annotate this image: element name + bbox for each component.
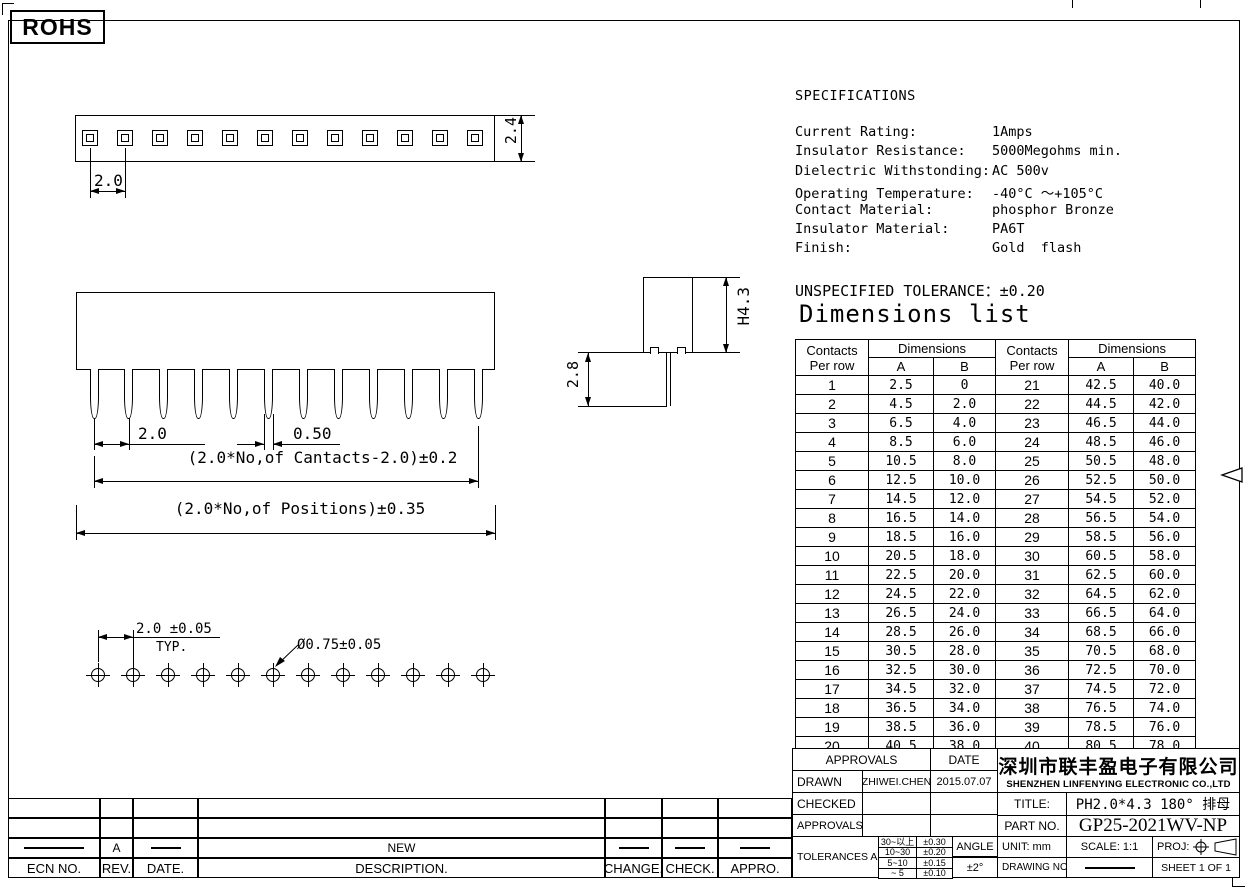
top-view-pin xyxy=(222,130,238,146)
dimension-cell: 44.5 xyxy=(1069,395,1134,414)
dim-ext-line xyxy=(495,115,535,116)
spec-row: Insulator Material:PA6T xyxy=(795,221,1245,240)
contacts-cell: 35 xyxy=(996,642,1069,661)
contacts-cell: 9 xyxy=(796,528,869,547)
contacts-cell: 33 xyxy=(996,604,1069,623)
leader-line xyxy=(268,640,308,672)
top-view-pin-inner xyxy=(436,134,444,142)
revision-header-cell: CHECK. xyxy=(662,858,718,878)
col-header-a: A xyxy=(1069,358,1134,376)
dims-row: 1122.520.03162.560.0 xyxy=(796,566,1196,585)
side-view-height-label: H4.3 xyxy=(734,287,753,326)
footprint-hole-crosshair xyxy=(343,663,344,687)
spec-label: Operating Temperature: xyxy=(795,186,992,202)
contacts-cell: 5 xyxy=(796,452,869,471)
angle-label-cell: ANGLE xyxy=(952,836,998,857)
dimension-cell: 76.0 xyxy=(1134,718,1196,737)
dimension-cell: 68.0 xyxy=(1134,642,1196,661)
front-view-pin xyxy=(334,369,343,419)
revision-empty-cell xyxy=(133,818,198,838)
revision-header-cell: REV. xyxy=(100,858,133,878)
col-header-contacts: Contacts Per row xyxy=(996,340,1069,376)
dim-ext-line xyxy=(264,414,265,450)
contacts-cell: 14 xyxy=(796,623,869,642)
dims-row: 714.512.02754.552.0 xyxy=(796,490,1196,509)
spec-label: Insulator Material: xyxy=(795,221,992,237)
contacts-cell: 39 xyxy=(996,718,1069,737)
dim-ext-line xyxy=(578,406,667,407)
front-view-body xyxy=(76,292,495,370)
drawn-label-cell: DRAWN xyxy=(792,770,863,793)
top-view-pin xyxy=(187,130,203,146)
top-view-pin-inner xyxy=(296,134,304,142)
corner-mark xyxy=(1232,886,1245,887)
revision-empty-cell xyxy=(133,798,198,818)
company-name-cn: 深圳市联丰盈电子有限公司 xyxy=(998,752,1238,779)
dimension-cell: 12.5 xyxy=(869,471,934,490)
drawing-no-label-cell: DRAWING NO. xyxy=(997,857,1067,878)
dimension-cell: 30.5 xyxy=(869,642,934,661)
dims-row: 36.54.02346.544.0 xyxy=(796,414,1196,433)
spec-row: Insulator Resistance:5000Megohms min. xyxy=(795,143,1245,162)
dimension-cell: 72.5 xyxy=(1069,661,1134,680)
drawing-no-value-cell xyxy=(1066,857,1153,878)
dimension-cell: 62.0 xyxy=(1134,585,1196,604)
dimension-cell: 68.5 xyxy=(1069,623,1134,642)
spec-row: Dielectric Withstonding:AC 500v xyxy=(795,163,1245,182)
dims-row: 1020.518.03060.558.0 xyxy=(796,547,1196,566)
dimension-cell: 0 xyxy=(934,376,996,395)
contacts-cell: 2 xyxy=(796,395,869,414)
contacts-cell: 4 xyxy=(796,433,869,452)
dim-ext-line xyxy=(495,161,535,162)
dim-ext-line xyxy=(129,418,130,450)
dimension-cell: 8.0 xyxy=(934,452,996,471)
contacts-cell: 12 xyxy=(796,585,869,604)
spec-value: 1Amps xyxy=(992,124,1033,140)
front-view-pin xyxy=(264,369,273,419)
dimension-cell: 2.5 xyxy=(869,376,934,395)
col-header-b: B xyxy=(934,358,996,376)
drawn-by-cell: ZHIWEI.CHEN xyxy=(862,770,931,793)
dimension-cell: 40.0 xyxy=(1134,376,1196,395)
dimension-cell: 18.0 xyxy=(934,547,996,566)
dimension-cell: 72.0 xyxy=(1134,680,1196,699)
checked-date-cell xyxy=(930,792,998,815)
positions-span-formula: (2.0*No,of Positions)±0.35 xyxy=(130,499,470,518)
spec-row: Contact Material:phosphor Bronze xyxy=(795,202,1245,221)
dimension-cell: 30.0 xyxy=(934,661,996,680)
dim-arrow xyxy=(94,441,103,447)
dim-arrow xyxy=(518,153,524,162)
spec-row: Operating Temperature:-40°C ～+105°C xyxy=(795,182,1245,201)
revision-header-cell: ECN NO. xyxy=(8,858,100,878)
dimension-cell: 8.5 xyxy=(869,433,934,452)
dims-row: 1938.536.03978.576.0 xyxy=(796,718,1196,737)
dim-arrow xyxy=(273,441,282,447)
front-view-pin xyxy=(404,369,413,419)
contacts-cell: 27 xyxy=(996,490,1069,509)
footprint-hole-crosshair xyxy=(413,663,414,687)
specifications-heading: SPECIFICATIONS xyxy=(795,88,916,104)
revision-empty-cell xyxy=(100,798,133,818)
top-view-pitch-label: 2.0 xyxy=(94,171,123,190)
engineering-drawing-page: ROHS 2.0 2.4 2.0 0.50 (2.0*No,of Cantact… xyxy=(0,0,1247,889)
dimension-cell: 2.0 xyxy=(934,395,996,414)
dimension-cell: 66.5 xyxy=(1069,604,1134,623)
revision-empty-cell xyxy=(100,818,133,838)
footprint-typ-label: TYP. xyxy=(156,640,187,655)
dims-row: 1836.534.03876.574.0 xyxy=(796,699,1196,718)
contacts-cell: 24 xyxy=(996,433,1069,452)
front-view-pin xyxy=(90,369,99,419)
dimension-cell: 46.5 xyxy=(1069,414,1134,433)
dimension-cell: 32.5 xyxy=(869,661,934,680)
front-view-pin xyxy=(369,369,378,419)
footprint-hole-crosshair xyxy=(378,663,379,687)
revision-empty-cell xyxy=(198,818,605,838)
dim-ext-line xyxy=(125,148,126,198)
spec-label: Current Rating: xyxy=(795,124,992,140)
contacts-cell: 22 xyxy=(996,395,1069,414)
dimension-cell: 4.0 xyxy=(934,414,996,433)
side-view-body xyxy=(643,277,693,353)
sheet-cell: SHEET 1 OF 1 xyxy=(1152,857,1240,878)
dimension-cell: 74.0 xyxy=(1134,699,1196,718)
side-view-pin-length-label: 2.8 xyxy=(564,361,582,388)
footprint-hole-crosshair xyxy=(483,663,484,687)
dimension-cell: 50.0 xyxy=(1134,471,1196,490)
dim-arrow xyxy=(723,277,729,286)
dimension-cell: 16.0 xyxy=(934,528,996,547)
dim-arrow xyxy=(98,634,107,640)
contacts-cell: 26 xyxy=(996,471,1069,490)
dimension-cell: 58.5 xyxy=(1069,528,1134,547)
contacts-cell: 36 xyxy=(996,661,1069,680)
revision-header-cell: CHANGE. xyxy=(605,858,662,878)
proj-label: PROJ: xyxy=(1157,841,1189,853)
dim-arrow xyxy=(486,530,495,536)
specifications-block: SPECIFICATIONS Current Rating:1AmpsInsul… xyxy=(795,88,916,104)
dim-arrow xyxy=(76,530,85,536)
revision-empty-dash-cell xyxy=(718,838,792,858)
contacts-cell: 38 xyxy=(996,699,1069,718)
spec-value: PA6T xyxy=(992,221,1025,237)
contacts-cell: 34 xyxy=(996,623,1069,642)
revision-header-cell: DATE. xyxy=(133,858,198,878)
spec-label: Finish: xyxy=(795,240,992,256)
title-value-cell: PH2.0*4.3 180° 排母 xyxy=(1066,792,1240,816)
revision-dash xyxy=(675,847,705,849)
dims-row: 24.52.02244.542.0 xyxy=(796,395,1196,414)
dimension-cell: 76.5 xyxy=(1069,699,1134,718)
dimension-cell: 70.5 xyxy=(1069,642,1134,661)
dimension-cell: 28.0 xyxy=(934,642,996,661)
dim-arrow xyxy=(255,441,264,447)
dimension-cell: 64.0 xyxy=(1134,604,1196,623)
front-view-pin xyxy=(194,369,203,419)
contacts-cell: 31 xyxy=(996,566,1069,585)
dimension-cell: 64.5 xyxy=(1069,585,1134,604)
dim-line xyxy=(273,444,340,445)
revision-header-cell: APPRO. xyxy=(718,858,792,878)
top-view-pin-inner xyxy=(366,134,374,142)
dimension-cell: 58.0 xyxy=(1134,547,1196,566)
col-header-dimensions: Dimensions xyxy=(1069,340,1196,358)
dimension-cell: 54.0 xyxy=(1134,509,1196,528)
dimension-cell: 52.0 xyxy=(1134,490,1196,509)
side-view-pin xyxy=(670,353,671,406)
dim-arrow xyxy=(723,344,729,353)
col-header-dimensions: Dimensions xyxy=(869,340,996,358)
dims-row: 510.58.02550.548.0 xyxy=(796,452,1196,471)
approvals-by-cell xyxy=(862,814,931,837)
drawn-date-cell: 2015.07.07 xyxy=(930,770,998,793)
front-view-pin xyxy=(439,369,448,419)
dimension-cell: 24.0 xyxy=(934,604,996,623)
contacts-cell: 17 xyxy=(796,680,869,699)
revision-dash xyxy=(24,847,84,849)
dim-line xyxy=(94,481,478,482)
spec-value: phosphor Bronze xyxy=(992,202,1114,218)
dimension-cell: 20.0 xyxy=(934,566,996,585)
contacts-cell: 13 xyxy=(796,604,869,623)
revision-dash xyxy=(740,847,770,849)
spec-value: -40°C ～+105°C xyxy=(992,186,1103,202)
side-view-pin xyxy=(666,353,667,406)
contacts-cell: 8 xyxy=(796,509,869,528)
front-view-pin xyxy=(159,369,168,419)
top-view-pin-inner xyxy=(191,134,199,142)
dims-row: 1530.528.03570.568.0 xyxy=(796,642,1196,661)
contacts-cell: 10 xyxy=(796,547,869,566)
dimension-cell: 20.5 xyxy=(869,547,934,566)
projection-cell: PROJ: xyxy=(1152,836,1240,858)
top-view-height-label: 2.4 xyxy=(502,117,520,144)
top-view-pin-inner xyxy=(86,134,94,142)
dimension-cell: 36.5 xyxy=(869,699,934,718)
dimension-cell: 26.0 xyxy=(934,623,996,642)
dim-arrow xyxy=(585,353,591,362)
dim-arrow xyxy=(94,478,103,484)
footprint-hole-crosshair xyxy=(133,663,134,687)
top-view-pin xyxy=(467,130,483,146)
dimension-cell: 24.5 xyxy=(869,585,934,604)
spec-value: 5000Megohms min. xyxy=(992,143,1122,159)
dimension-cell: 18.5 xyxy=(869,528,934,547)
dimension-cell: 36.0 xyxy=(934,718,996,737)
approvals-date-cell xyxy=(930,814,998,837)
top-view-pin-inner xyxy=(226,134,234,142)
dimension-cell: 26.5 xyxy=(869,604,934,623)
contacts-cell: 16 xyxy=(796,661,869,680)
dim-line xyxy=(94,444,205,445)
date-header-cell: DATE xyxy=(930,748,998,771)
contacts-cell: 18 xyxy=(796,699,869,718)
revision-empty-dash-cell xyxy=(133,838,198,858)
front-view-pin-width-label: 0.50 xyxy=(293,424,332,443)
dimension-cell: 42.5 xyxy=(1069,376,1134,395)
spec-label: Dielectric Withstonding: xyxy=(795,163,992,179)
top-view-pin xyxy=(117,130,133,146)
dimension-cell: 46.0 xyxy=(1134,433,1196,452)
dimension-cell: 12.0 xyxy=(934,490,996,509)
dimension-cell: 44.0 xyxy=(1134,414,1196,433)
top-view-pin xyxy=(362,130,378,146)
part-no-label-cell: PART NO. xyxy=(997,815,1067,837)
dimension-cell: 60.0 xyxy=(1134,566,1196,585)
spec-row: Current Rating:1Amps xyxy=(795,124,1245,143)
approvals-label-cell: APPROVALS xyxy=(792,814,863,837)
dimension-cell: 10.0 xyxy=(934,471,996,490)
dim-arrow xyxy=(469,478,478,484)
dim-line xyxy=(98,637,220,638)
dim-line xyxy=(76,533,495,534)
contacts-cell: 15 xyxy=(796,642,869,661)
dim-ext-line xyxy=(693,352,740,353)
revision-empty-cell xyxy=(8,798,100,818)
dimension-cell: 34.0 xyxy=(934,699,996,718)
dim-arrow xyxy=(585,397,591,406)
dimension-cell: 32.0 xyxy=(934,680,996,699)
contacts-cell: 7 xyxy=(796,490,869,509)
revision-empty-cell xyxy=(662,818,718,838)
top-view-pin-inner xyxy=(401,134,409,142)
dimension-cell: 78.5 xyxy=(1069,718,1134,737)
dims-row: 48.56.02448.546.0 xyxy=(796,433,1196,452)
contacts-cell: 37 xyxy=(996,680,1069,699)
revision-empty-cell xyxy=(605,818,662,838)
revision-empty-cell xyxy=(198,798,605,818)
revision-header-cell: DESCRIPTION. xyxy=(198,858,605,878)
top-view-pin xyxy=(257,130,273,146)
dims-row: 1224.522.03264.562.0 xyxy=(796,585,1196,604)
dims-row: 1734.532.03774.572.0 xyxy=(796,680,1196,699)
top-view-pin-inner xyxy=(261,134,269,142)
front-view-pin xyxy=(299,369,308,419)
dims-row: 612.510.02652.550.0 xyxy=(796,471,1196,490)
corner-mark xyxy=(1232,878,1233,886)
dim-line xyxy=(726,277,727,353)
top-view-pin-inner xyxy=(471,134,479,142)
footprint-hole-crosshair xyxy=(168,663,169,687)
company-name-en: SHENZHEN LINFENYING ELECTRONIC CO.,LTD xyxy=(1006,779,1230,790)
dim-ext-line xyxy=(133,630,134,665)
specifications-rows: Current Rating:1AmpsInsulator Resistance… xyxy=(795,124,1245,260)
dims-row: 816.514.02856.554.0 xyxy=(796,509,1196,528)
spec-row: Finish:Gold flash xyxy=(795,240,1245,259)
contacts-span-formula: (2.0*No,of Cantacts-2.0)±0.2 xyxy=(150,448,495,467)
dimension-cell: 6.0 xyxy=(934,433,996,452)
approvals-header-cell: APPROVALS xyxy=(792,748,931,771)
angle-value-cell: ±2° xyxy=(952,857,998,878)
contacts-cell: 6 xyxy=(796,471,869,490)
revision-dash xyxy=(151,847,181,849)
dims-row: 1428.526.03468.566.0 xyxy=(796,623,1196,642)
footprint-hole-crosshair xyxy=(98,663,99,687)
tolerance-range-cell: ~ 5 xyxy=(878,868,917,880)
dimension-cell: 14.5 xyxy=(869,490,934,509)
dimension-cell: 54.5 xyxy=(1069,490,1134,509)
dimension-cell: 6.5 xyxy=(869,414,934,433)
revision-empty-cell xyxy=(718,798,792,818)
dimension-cell: 22.0 xyxy=(934,585,996,604)
revision-rev-value: A xyxy=(100,838,133,858)
top-view-pin-inner xyxy=(121,134,129,142)
spec-value: AC 500v xyxy=(992,163,1049,179)
dims-row: 1632.530.03672.570.0 xyxy=(796,661,1196,680)
dimension-cell: 14.0 xyxy=(934,509,996,528)
revision-dash xyxy=(619,847,649,849)
dimension-cell: 22.5 xyxy=(869,566,934,585)
front-view-pin xyxy=(474,369,483,419)
top-view-pin xyxy=(152,130,168,146)
col-header-b: B xyxy=(1134,358,1196,376)
frame-center-triangle xyxy=(1220,467,1244,483)
title-label-cell: TITLE: xyxy=(997,792,1067,816)
dimensions-list-title: Dimensions list xyxy=(799,300,1031,328)
side-view-notch xyxy=(650,347,659,354)
dimension-cell: 38.5 xyxy=(869,718,934,737)
top-view-pin xyxy=(397,130,413,146)
part-no-value-cell: GP25-2021WV-NP xyxy=(1066,815,1240,837)
revision-empty-cell xyxy=(718,818,792,838)
footprint-hole-crosshair xyxy=(238,663,239,687)
contacts-cell: 30 xyxy=(996,547,1069,566)
dim-ext-line xyxy=(495,505,496,540)
dimension-cell: 52.5 xyxy=(1069,471,1134,490)
dims-row: 1326.524.03366.564.0 xyxy=(796,604,1196,623)
side-view-notch xyxy=(677,347,686,354)
footprint-hole-label: Ø0.75±0.05 xyxy=(297,637,381,653)
revision-empty-dash-cell xyxy=(605,838,662,858)
contacts-cell: 11 xyxy=(796,566,869,585)
revision-empty-dash-cell xyxy=(662,838,718,858)
footprint-hole-crosshair xyxy=(448,663,449,687)
dimension-cell: 56.5 xyxy=(1069,509,1134,528)
corner-mark xyxy=(2,3,3,15)
dimension-cell: 50.5 xyxy=(1069,452,1134,471)
dimension-cell: 60.5 xyxy=(1069,547,1134,566)
revision-empty-cell xyxy=(605,798,662,818)
revision-description-value: NEW xyxy=(198,838,605,858)
dimension-cell: 48.5 xyxy=(1069,433,1134,452)
third-angle-projection-icon xyxy=(1191,838,1239,856)
tolerance-value-cell: ±0.10 xyxy=(916,868,953,880)
footprint-hole-crosshair xyxy=(203,663,204,687)
top-view-pin xyxy=(82,130,98,146)
dimension-cell: 34.5 xyxy=(869,680,934,699)
dimension-cell: 16.5 xyxy=(869,509,934,528)
top-view-pin xyxy=(327,130,343,146)
top-view-pin-inner xyxy=(331,134,339,142)
drawing-no-dash xyxy=(1085,867,1135,869)
dims-row: 918.516.02958.556.0 xyxy=(796,528,1196,547)
contacts-cell: 32 xyxy=(996,585,1069,604)
dimension-cell: 62.5 xyxy=(1069,566,1134,585)
contacts-cell: 23 xyxy=(996,414,1069,433)
dim-ext-line xyxy=(693,277,740,278)
frame-tick xyxy=(1200,0,1201,8)
revision-empty-cell xyxy=(8,818,100,838)
checked-by-cell xyxy=(862,792,931,815)
dimension-cell: 28.5 xyxy=(869,623,934,642)
top-view-pin xyxy=(432,130,448,146)
contacts-cell: 29 xyxy=(996,528,1069,547)
company-cell: 深圳市联丰盈电子有限公司 SHENZHEN LINFENYING ELECTRO… xyxy=(997,748,1240,793)
top-view-pin-inner xyxy=(156,134,164,142)
dim-arrow xyxy=(120,441,129,447)
